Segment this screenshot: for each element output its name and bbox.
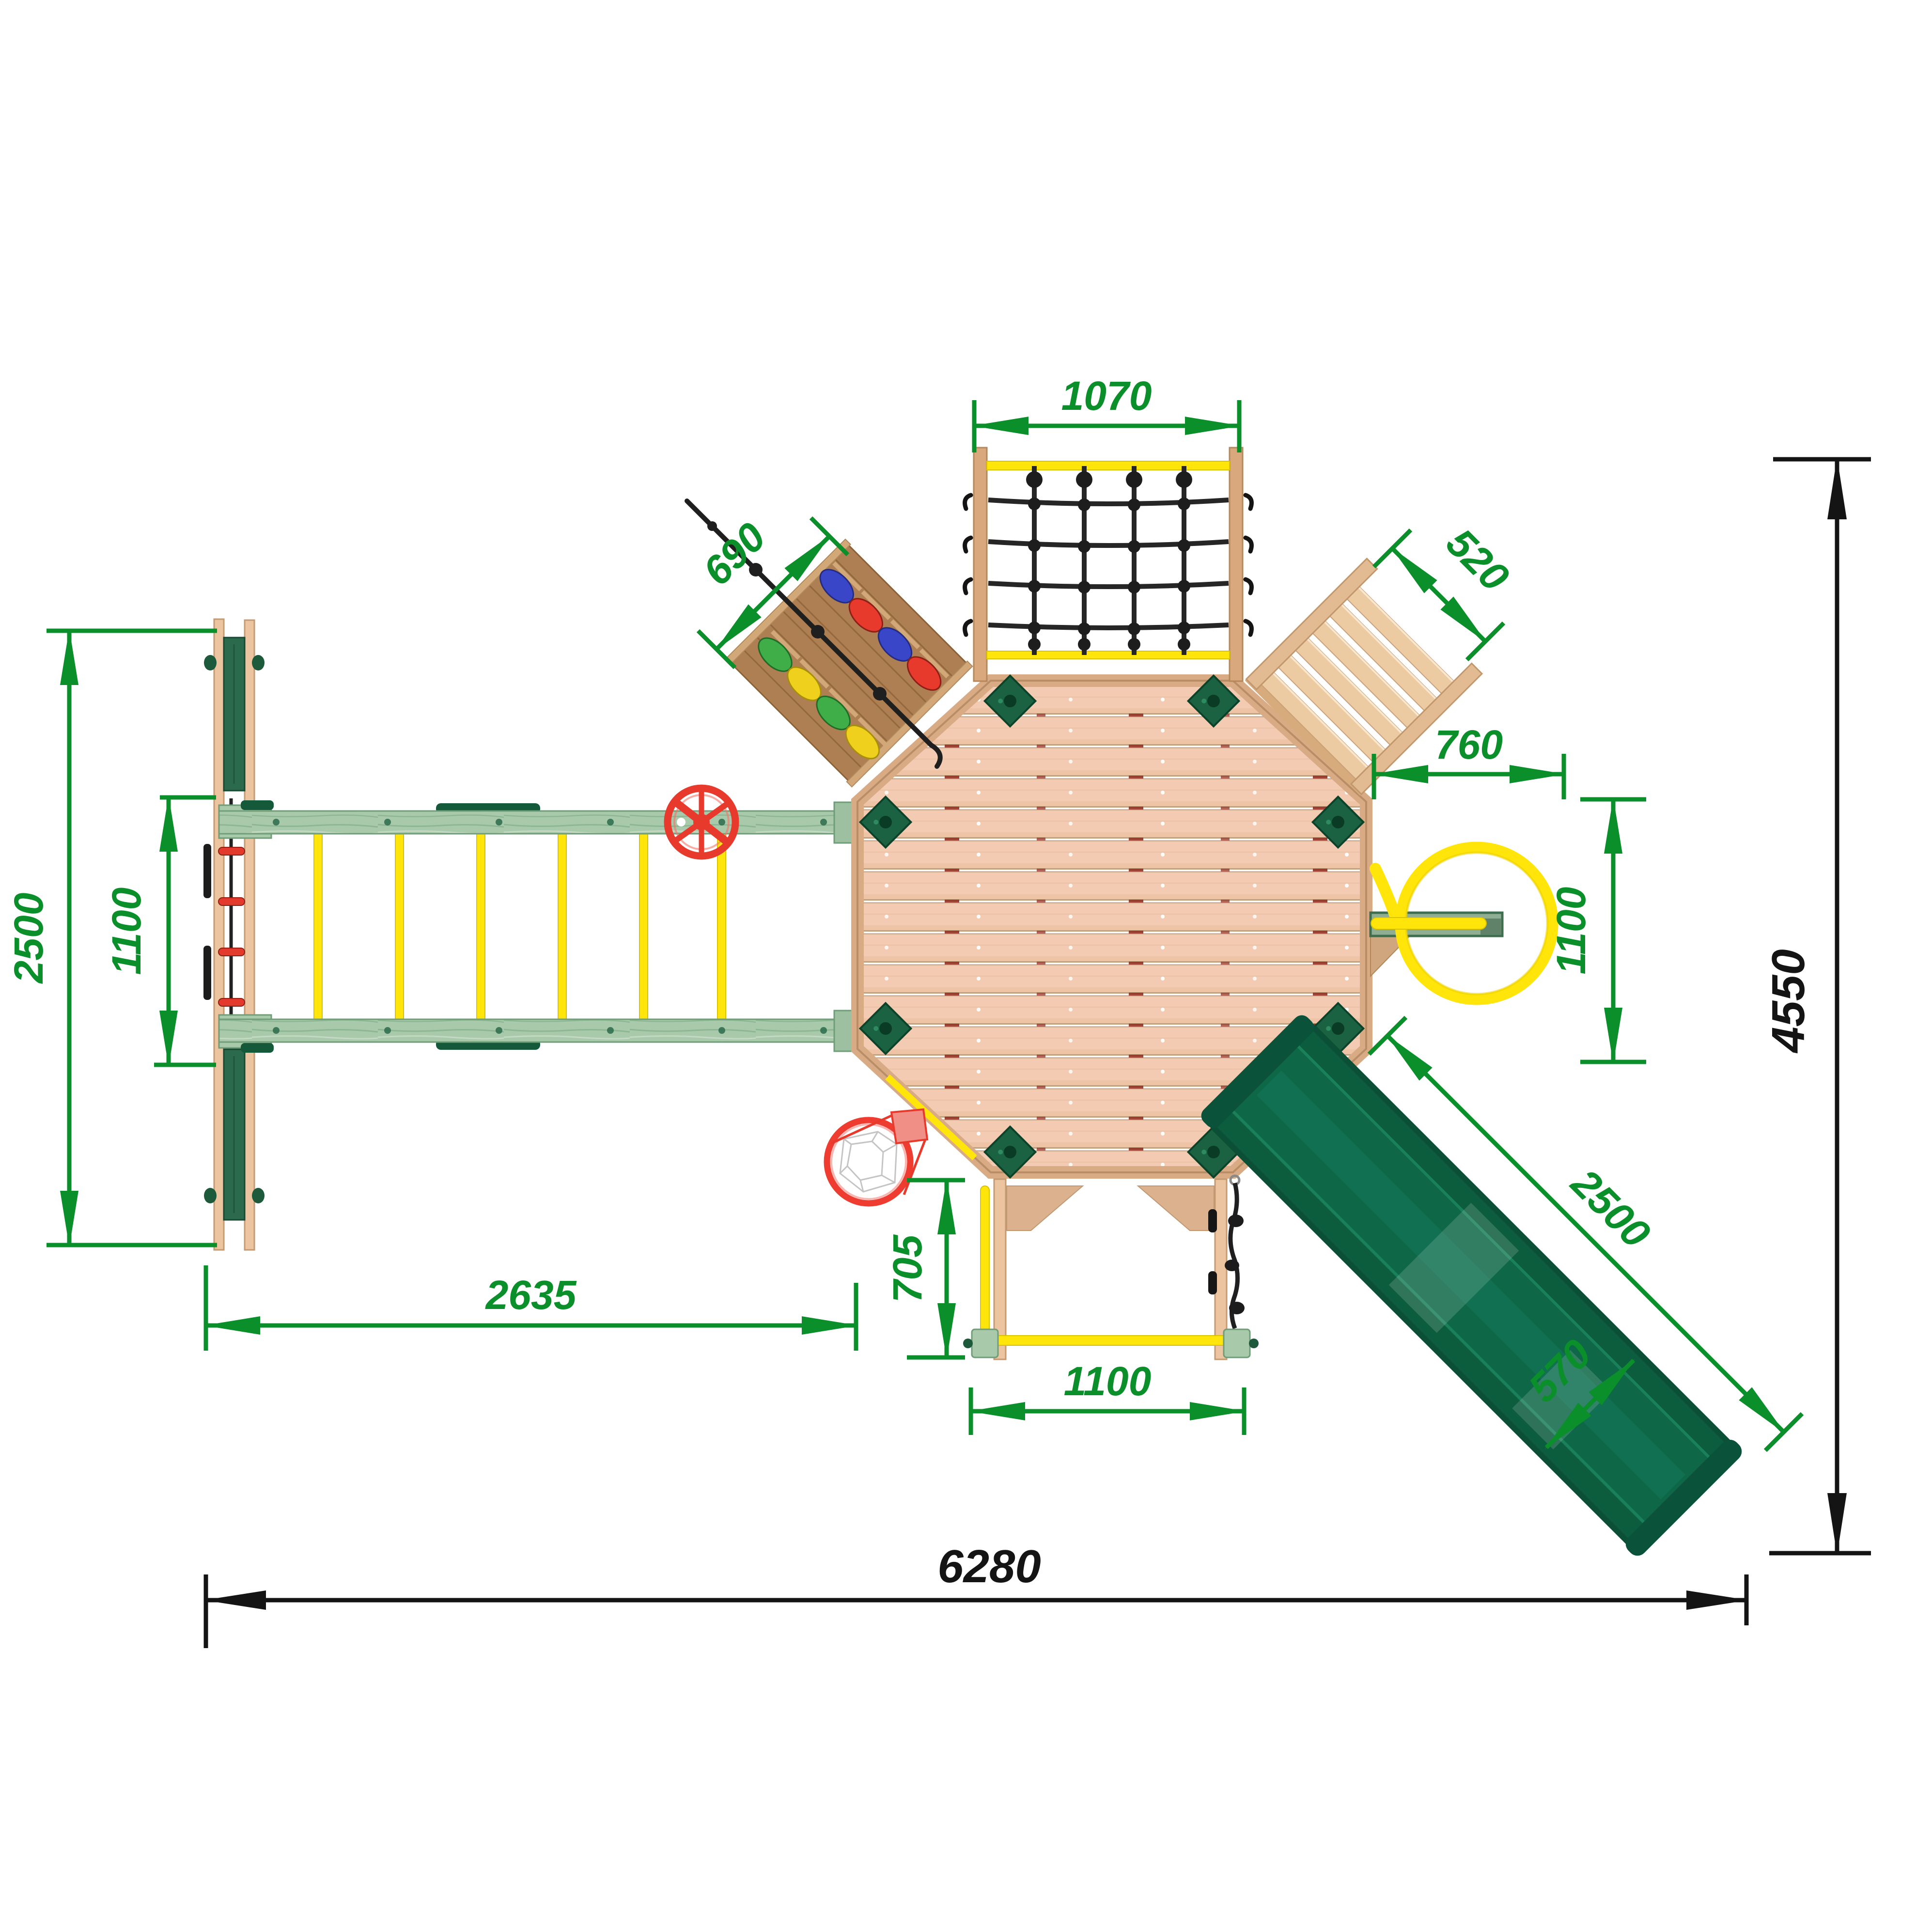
- left-wall-post-outer: [214, 619, 224, 1250]
- beam-plate: [241, 800, 274, 810]
- monkey-bar-rung: [395, 824, 404, 1029]
- diagram-svg: 1070 690 520 760 1100 2500 1100: [0, 0, 1932, 1932]
- net-bar-top: [987, 461, 1230, 470]
- dim-label-net-width: 1070: [1061, 373, 1152, 419]
- hand-pad: [203, 946, 211, 1000]
- hand-pad: [203, 844, 211, 898]
- post-cap-knob: [252, 655, 265, 670]
- rope-cleat: [1208, 1209, 1217, 1232]
- dim-label-bridge-inner: 1100: [104, 888, 149, 975]
- monkey-bar-rung: [558, 824, 566, 1029]
- rope-ladder-rung: [218, 847, 245, 855]
- dim-label-deck-to-ring: 760: [1435, 722, 1503, 767]
- monkey-bar-rung: [639, 824, 648, 1029]
- net-post-right: [1230, 448, 1243, 681]
- net-bar-bottom: [987, 651, 1230, 659]
- dim-label-bay-depth: 705: [885, 1234, 930, 1303]
- dim-label-overall-width: 6280: [937, 1541, 1041, 1592]
- bar-anchor-block: [972, 1329, 998, 1357]
- rope-ladder-rung: [218, 948, 245, 956]
- wheel-axle-hole: [677, 818, 686, 826]
- dim-label-bay-width: 1100: [1064, 1358, 1152, 1404]
- bay-bottom-bar: [998, 1336, 1224, 1345]
- rope-ladder-rung: [218, 898, 245, 905]
- dim-label-bridge-length: 2635: [485, 1272, 577, 1318]
- left-wall-post-inner: [245, 620, 254, 1250]
- drawing-page: 1070 690 520 760 1100 2500 1100: [0, 0, 1932, 1932]
- bridge-beam-bottom: [219, 1019, 857, 1042]
- monkey-bar-rung: [477, 824, 485, 1029]
- monkey-bar-rung: [314, 824, 322, 1029]
- dim-label-left-wall-length: 2500: [6, 893, 51, 984]
- post-cap-knob: [252, 1188, 265, 1203]
- bay-yellow-pole: [981, 1186, 989, 1344]
- net-post-left: [974, 448, 987, 681]
- bar-anchor-block: [1224, 1329, 1250, 1357]
- fire-pole: [1371, 918, 1486, 929]
- post-cap-knob: [204, 655, 217, 670]
- rope-cleat: [1208, 1271, 1217, 1294]
- beam-plate: [241, 1043, 274, 1053]
- dim-label-ring-offset: 1100: [1548, 887, 1594, 975]
- rope-ladder-rung: [218, 998, 245, 1006]
- dim-label-overall-height: 4550: [1762, 949, 1814, 1054]
- hoop-bracket: [891, 1109, 927, 1143]
- bridge-beam-top: [219, 811, 857, 834]
- post-cap-knob: [204, 1188, 217, 1203]
